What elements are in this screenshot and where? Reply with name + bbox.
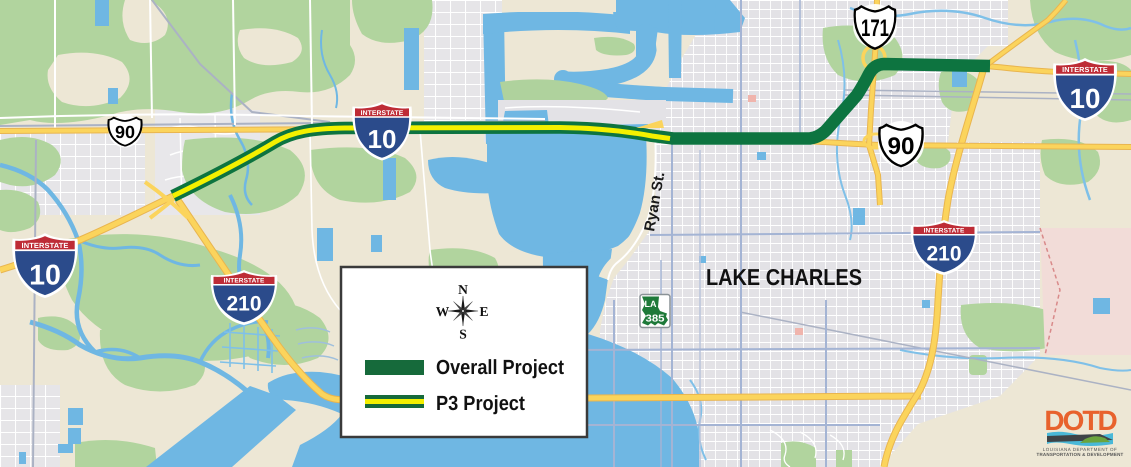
svg-text:10: 10 xyxy=(1070,82,1101,114)
svg-text:LAKE CHARLES: LAKE CHARLES xyxy=(706,264,862,290)
svg-text:E: E xyxy=(479,304,488,319)
svg-text:10: 10 xyxy=(29,258,61,291)
svg-text:171: 171 xyxy=(861,15,889,42)
svg-text:LA: LA xyxy=(645,299,657,309)
svg-text:P3 Project: P3 Project xyxy=(436,392,525,415)
svg-text:TRANSPORTATION & DEVELOPMENT: TRANSPORTATION & DEVELOPMENT xyxy=(1037,452,1124,457)
svg-text:S: S xyxy=(459,327,467,342)
svg-text:INTERSTATE: INTERSTATE xyxy=(22,242,69,250)
svg-text:INTERSTATE: INTERSTATE xyxy=(224,277,265,284)
svg-text:Overall Project: Overall Project xyxy=(436,356,564,379)
svg-text:N: N xyxy=(458,282,468,297)
svg-text:385: 385 xyxy=(646,314,665,325)
svg-text:210: 210 xyxy=(226,293,261,316)
svg-text:DOTD: DOTD xyxy=(1044,405,1117,436)
svg-text:W: W xyxy=(436,304,450,319)
svg-text:INTERSTATE: INTERSTATE xyxy=(361,110,404,117)
svg-text:INTERSTATE: INTERSTATE xyxy=(924,227,965,234)
svg-text:210: 210 xyxy=(926,243,961,266)
svg-text:INTERSTATE: INTERSTATE xyxy=(1062,67,1108,74)
svg-text:90: 90 xyxy=(115,122,135,142)
svg-text:90: 90 xyxy=(888,133,915,160)
svg-text:10: 10 xyxy=(368,124,397,154)
